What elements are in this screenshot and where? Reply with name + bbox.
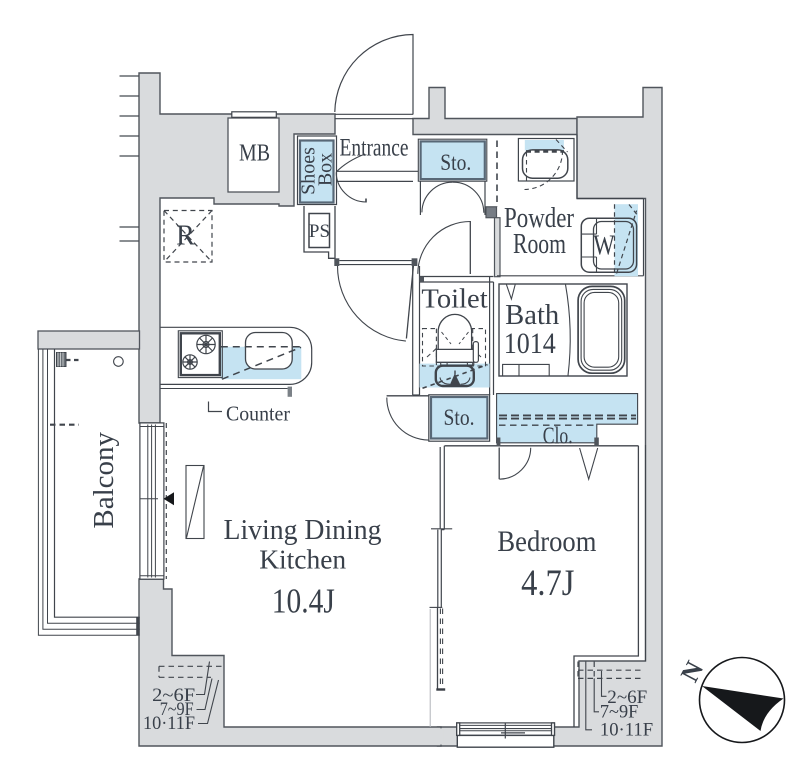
svg-text:R: R	[176, 221, 195, 252]
svg-text:Bath: Bath	[505, 300, 559, 331]
svg-text:10.4J: 10.4J	[272, 583, 335, 621]
svg-text:Counter: Counter	[226, 402, 290, 426]
svg-text:Sto.: Sto.	[444, 405, 475, 430]
svg-text:1014: 1014	[504, 328, 556, 360]
svg-text:Sto.: Sto.	[440, 150, 471, 175]
svg-text:Clo.: Clo.	[543, 424, 573, 450]
svg-text:Bedroom: Bedroom	[497, 525, 596, 558]
svg-text:Box: Box	[315, 153, 337, 186]
svg-text:Toilet: Toilet	[421, 283, 488, 314]
svg-text:MB: MB	[239, 140, 270, 167]
svg-text:Entrance: Entrance	[340, 133, 409, 162]
svg-text:Balcony: Balcony	[88, 431, 120, 528]
svg-text:W: W	[593, 230, 615, 262]
svg-text:4.7J: 4.7J	[521, 562, 574, 603]
svg-text:PS: PS	[309, 221, 330, 242]
svg-text:10·11F: 10·11F	[600, 720, 653, 741]
svg-text:Kitchen: Kitchen	[259, 543, 346, 574]
svg-text:Living Dining: Living Dining	[224, 514, 382, 546]
svg-text:10·11F: 10·11F	[143, 713, 195, 734]
svg-text:Room: Room	[513, 229, 566, 260]
